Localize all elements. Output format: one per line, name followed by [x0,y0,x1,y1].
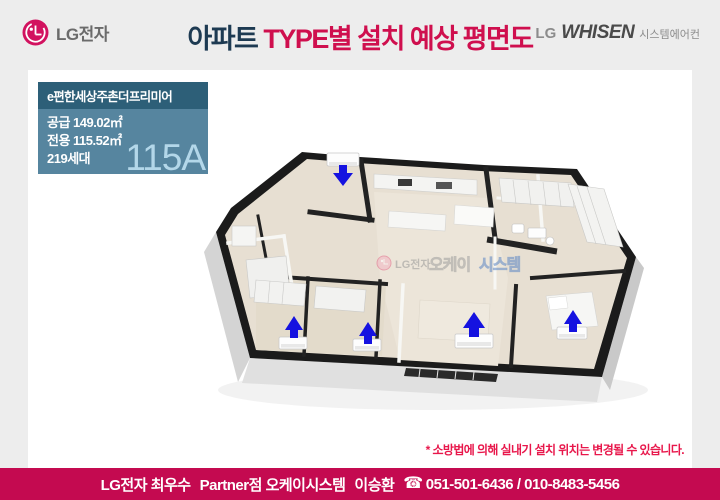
footer-phones: 051-501-6436 / 010-8483-5456 [426,476,620,493]
floorplan-image: LG전자 오케이 시스템 [198,128,678,428]
ac-indoor-unit [279,337,307,349]
unit-info-box: e편한세상주촌더프리미어 공급 149.02㎡ 전용 115.52㎡ 219세대… [38,82,208,174]
footer-partner: Partner점 오케이시스템 [200,474,346,495]
title-prefix: 아파트 [187,24,263,54]
flyer-page: { "header": { "logo_text": "LG전자", "titl… [0,0,720,500]
brand-product-text: 시스템에어컨 [639,26,700,42]
header: LG전자 아파트 TYPE별 설치 예상 평면도 LG WHISEN 시스템에어… [0,0,720,70]
content-panel: e편한세상주촌더프리미어 공급 149.02㎡ 전용 115.52㎡ 219세대… [28,70,692,468]
watermark-lg-text: LG전자 [395,257,431,271]
type-code: 115A [125,139,205,176]
ac-indoor-unit [327,153,359,166]
brand-whisen-text: WHISEN [561,22,634,44]
footer-phone-group: ☎ 051-501-6436 / 010-8483-5456 [403,476,619,493]
watermark-okay-text: 오케이 [429,256,470,274]
footer-person: 이승환 [354,474,394,495]
watermark-system-text: 시스템 [479,255,520,274]
unit-info-body: 공급 149.02㎡ 전용 115.52㎡ 219세대 115A [38,109,208,174]
supply-area: 공급 149.02㎡ [47,114,208,132]
brand-lg-text: LG [535,25,556,42]
footer-dealer: LG전자 최우수 [101,474,191,495]
title-highlight: TYPE별 설치 예상 평면도 [263,24,532,54]
phone-icon: ☎ [403,476,422,492]
disclaimer-text: * 소방법에 의해 실내기 설치 위치는 변경될 수 있습니다. [426,441,684,458]
whisen-brand: LG WHISEN 시스템에어컨 [535,22,700,44]
footer-bar: LG전자 최우수 Partner점 오케이시스템 이승환 ☎ 051-501-6… [0,468,720,500]
complex-name: e편한세상주촌더프리미어 [38,82,208,109]
